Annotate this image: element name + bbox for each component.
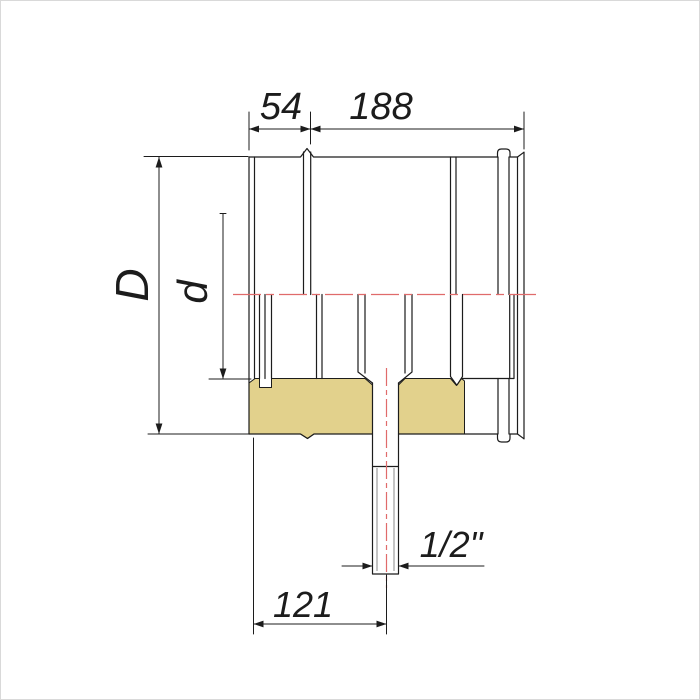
drawing-canvas: 54 188 D d 1/2" 121: [0, 0, 700, 700]
label-188: 188: [349, 86, 412, 128]
drain-tube: [373, 383, 399, 574]
pipe-body-outline: [249, 149, 524, 575]
technical-drawing: 54 188 D d 1/2" 121: [1, 1, 699, 699]
label-121: 121: [273, 584, 333, 625]
drain-boss: [358, 295, 412, 384]
socket-inner-wall: [463, 295, 515, 379]
pipe-right-edge: [518, 152, 525, 439]
bead-top-cap: [498, 149, 511, 157]
seam-mid-lower: [317, 295, 323, 379]
dim-line-d: [220, 214, 226, 379]
insulation-left-block: [249, 379, 373, 439]
socket-joint-lower: [451, 295, 463, 385]
socket-joint-upper: [451, 157, 457, 295]
seam-left-upper: [304, 152, 311, 295]
pipe-top-edge: [249, 149, 524, 158]
bead-walls: [498, 157, 509, 434]
dimension-labels: 54 188 D d 1/2" 121: [106, 86, 485, 625]
insulation-layer: [249, 379, 465, 439]
drain-thread-lines: [377, 468, 394, 571]
label-d: d: [169, 279, 216, 304]
insulation-right-block: [399, 379, 465, 435]
seam-left-lower: [260, 295, 272, 379]
bead-bottom-cap: [498, 434, 511, 442]
label-half-inch: 1/2": [420, 524, 485, 565]
centerlines: [233, 295, 536, 589]
label-D: D: [106, 268, 158, 301]
label-54: 54: [260, 86, 302, 128]
